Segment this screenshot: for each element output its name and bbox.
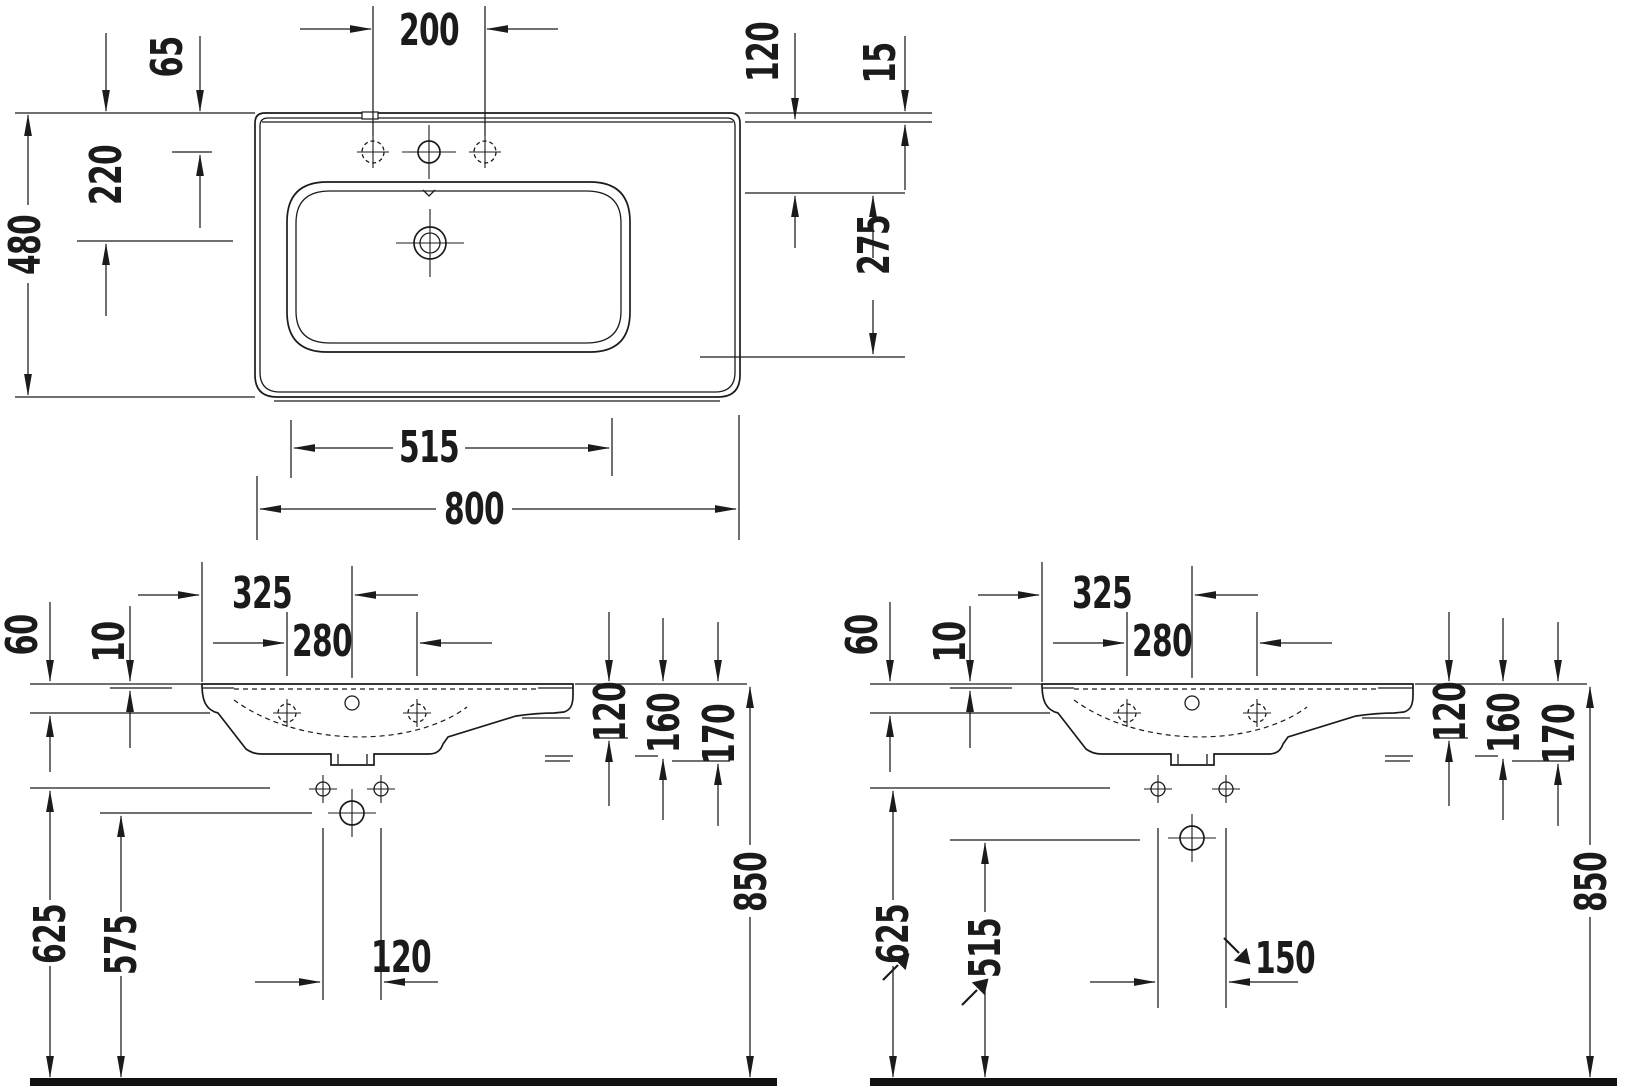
dim-label-fixing-height: 625 (25, 904, 76, 964)
dim-label-drain-height: 575 (96, 915, 147, 975)
mounting-hole-right-b (1212, 775, 1240, 803)
plan-view-dimensions (15, 6, 932, 540)
drain-pipe-front-b (1168, 814, 1216, 862)
tap-hole-center (402, 125, 456, 179)
front-view-a-dimensions (30, 562, 750, 1077)
drain-pipe-front (328, 789, 376, 837)
dim-label-back-rim: 15 (855, 43, 906, 84)
dim-label-center-from-left: 325 (232, 568, 292, 619)
front-view-b-labels: 60 10 325 280 120 160 170 850 625 515 15… (837, 568, 1617, 1005)
reference-arrow-icon (962, 980, 987, 1005)
dim-label-drain-from-back: 220 (81, 145, 132, 205)
dim-label-body-120: 120 (585, 682, 636, 742)
reference-arrow-icon (1224, 938, 1249, 963)
hidden-hole-right (403, 699, 431, 727)
washbasin-dimension-drawing: 480 220 65 200 120 15 275 515 800 (0, 0, 1630, 1087)
dim-label-center-from-left-b: 325 (1072, 568, 1132, 619)
tap-hole-front-b (1185, 696, 1199, 710)
plan-view-labels: 480 220 65 200 120 15 275 515 800 (0, 5, 906, 535)
dim-label-supply-spacing-b: 150 (1255, 933, 1315, 984)
front-view-b-dimensions (870, 562, 1590, 1077)
dim-label-body-120-b: 120 (1425, 682, 1476, 742)
plan-view-linework (255, 112, 740, 401)
dim-label-body-160: 160 (639, 693, 690, 753)
dim-label-fixing-spacing: 280 (292, 616, 352, 667)
back-edge-notch (362, 112, 378, 119)
dim-label-body-170-b: 170 (1534, 704, 1585, 764)
technical-drawing-page: 480 220 65 200 120 15 275 515 800 (0, 0, 1630, 1087)
drain-hole-plan (396, 209, 464, 277)
mounting-hole-right (367, 775, 395, 803)
dim-label-drain-height-b: 515 (960, 918, 1011, 978)
dim-label-fixing-spacing-b: 280 (1132, 616, 1192, 667)
dim-label-rim-height: 60 (0, 615, 48, 656)
dim-label-rim-height-floor-b: 850 (1566, 852, 1617, 912)
dim-label-rim-height-b: 60 (837, 615, 888, 656)
mounting-hole-left (309, 775, 337, 803)
dim-label-top-edge-b: 10 (925, 622, 976, 663)
dim-label-overall-depth: 480 (0, 215, 51, 275)
mounting-hole-left-b (1144, 775, 1172, 803)
dim-label-taphole-from-back: 65 (142, 37, 193, 78)
front-view-a-labels: 60 10 325 280 120 160 170 850 625 575 12… (0, 568, 777, 983)
dim-label-taphole-spacing: 200 (399, 5, 459, 56)
tap-hole-front (345, 696, 359, 710)
dim-label-overall-width: 800 (444, 484, 504, 535)
dim-label-deck-depth: 120 (738, 22, 789, 82)
dim-label-fixing-height-b: 625 (868, 904, 919, 964)
hidden-hole-right-b (1243, 699, 1271, 727)
dim-label-body-170: 170 (694, 704, 745, 764)
dim-label-bowl-width: 515 (399, 422, 459, 473)
dim-label-supply-spacing: 120 (371, 932, 431, 983)
dim-label-top-edge: 10 (84, 622, 135, 663)
dim-label-rim-height-floor: 850 (726, 852, 777, 912)
dim-label-body-160-b: 160 (1479, 693, 1530, 753)
tap-hole-left-optional (357, 136, 389, 168)
dim-label-bowl-depth: 275 (849, 215, 900, 275)
tap-hole-right-optional (469, 136, 501, 168)
